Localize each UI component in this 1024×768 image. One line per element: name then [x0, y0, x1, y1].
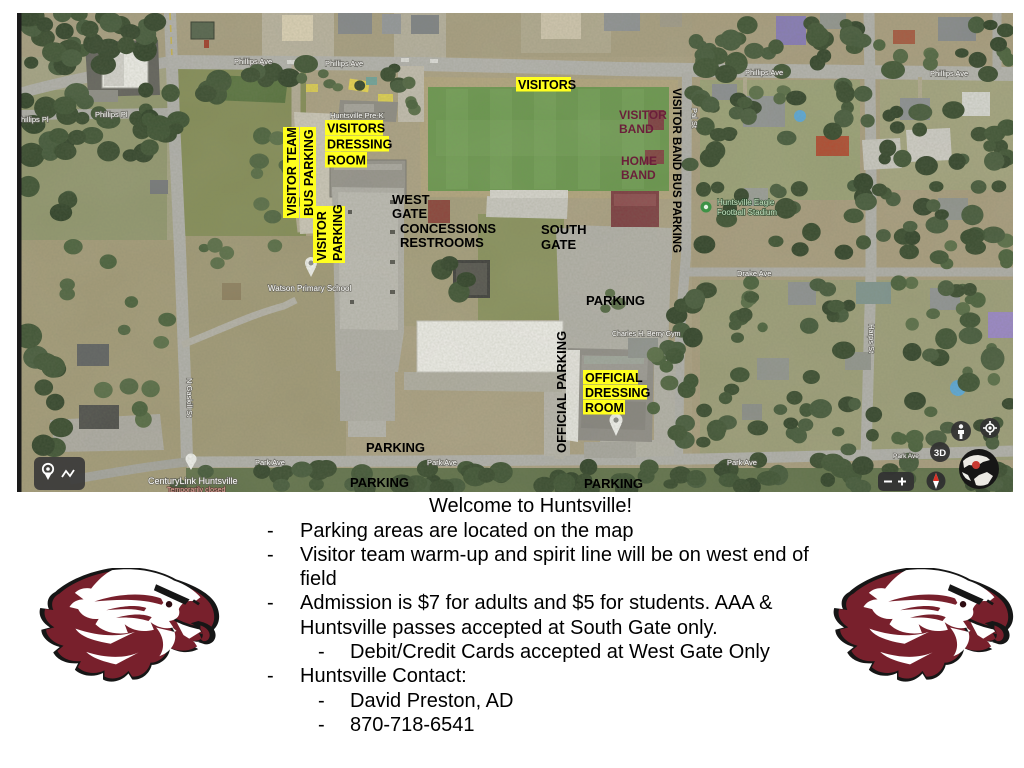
- svg-text:VISITOR: VISITOR: [619, 108, 667, 122]
- svg-text:ROOM: ROOM: [585, 401, 624, 415]
- svg-text:VISITORS: VISITORS: [327, 122, 385, 136]
- svg-text:Pal St: Pal St: [690, 108, 699, 129]
- svg-text:WEST: WEST: [392, 192, 430, 207]
- svg-text:Phillips Ave: Phillips Ave: [930, 69, 968, 78]
- svg-text:Park Ave: Park Ave: [893, 453, 919, 460]
- svg-text:Huntsville Eagle: Huntsville Eagle: [717, 198, 775, 207]
- svg-text:Watson Primary School: Watson Primary School: [268, 284, 352, 293]
- svg-text:VISITOR TEAM: VISITOR TEAM: [285, 127, 299, 216]
- svg-text:GATE: GATE: [541, 237, 576, 252]
- svg-text:OFFICIAL: OFFICIAL: [585, 371, 643, 385]
- svg-text:PARKING: PARKING: [350, 475, 409, 490]
- svg-text:PARKING: PARKING: [584, 476, 643, 491]
- svg-text:BAND: BAND: [619, 122, 654, 136]
- svg-text:Park Ave: Park Ave: [255, 458, 285, 467]
- svg-text:HOME: HOME: [621, 154, 657, 168]
- svg-text:VISITORS: VISITORS: [518, 78, 576, 92]
- svg-text:PARKING: PARKING: [331, 204, 345, 261]
- svg-text:PARKING: PARKING: [586, 293, 645, 308]
- svg-text:OFFICIAL PARKING: OFFICIAL PARKING: [554, 331, 569, 453]
- svg-text:Drake Ave: Drake Ave: [737, 269, 771, 278]
- svg-text:Phillips Ave: Phillips Ave: [234, 57, 272, 66]
- svg-text:DRESSING: DRESSING: [327, 138, 392, 152]
- svg-text:Park Ave: Park Ave: [727, 458, 757, 467]
- svg-text:Harps St: Harps St: [867, 324, 876, 354]
- svg-text:SOUTH: SOUTH: [541, 222, 587, 237]
- svg-text:CONCESSIONS: CONCESSIONS: [400, 221, 496, 236]
- svg-text:N Gaskill St: N Gaskill St: [185, 378, 194, 418]
- svg-text:ROOM: ROOM: [327, 154, 366, 168]
- svg-text:BAND: BAND: [621, 168, 656, 182]
- svg-text:Phillips Ave: Phillips Ave: [325, 59, 363, 68]
- svg-text:Phillips Pl: Phillips Pl: [95, 110, 128, 119]
- svg-text:GATE: GATE: [392, 206, 427, 221]
- svg-text:Huntsville Pre-K: Huntsville Pre-K: [330, 111, 384, 120]
- svg-text:Temporarily closed: Temporarily closed: [167, 487, 225, 494]
- svg-text:VISITOR: VISITOR: [315, 211, 329, 261]
- svg-text:CenturyLink Huntsville: CenturyLink Huntsville: [148, 476, 238, 486]
- svg-text:Charles H. Berry Gym: Charles H. Berry Gym: [612, 331, 681, 338]
- svg-text:VISITOR BAND BUS PARKING: VISITOR BAND BUS PARKING: [670, 88, 682, 253]
- svg-text:Phillips Ave: Phillips Ave: [745, 68, 783, 77]
- svg-text:Football Stadium: Football Stadium: [717, 208, 777, 217]
- svg-text:RESTROOMS: RESTROOMS: [400, 235, 484, 250]
- svg-text:PARKING: PARKING: [366, 440, 425, 455]
- svg-text:3D: 3D: [934, 448, 946, 459]
- svg-text:DRESSING: DRESSING: [585, 386, 650, 400]
- svg-text:Park Ave: Park Ave: [427, 458, 457, 467]
- svg-text:BUS PARKING: BUS PARKING: [302, 129, 316, 216]
